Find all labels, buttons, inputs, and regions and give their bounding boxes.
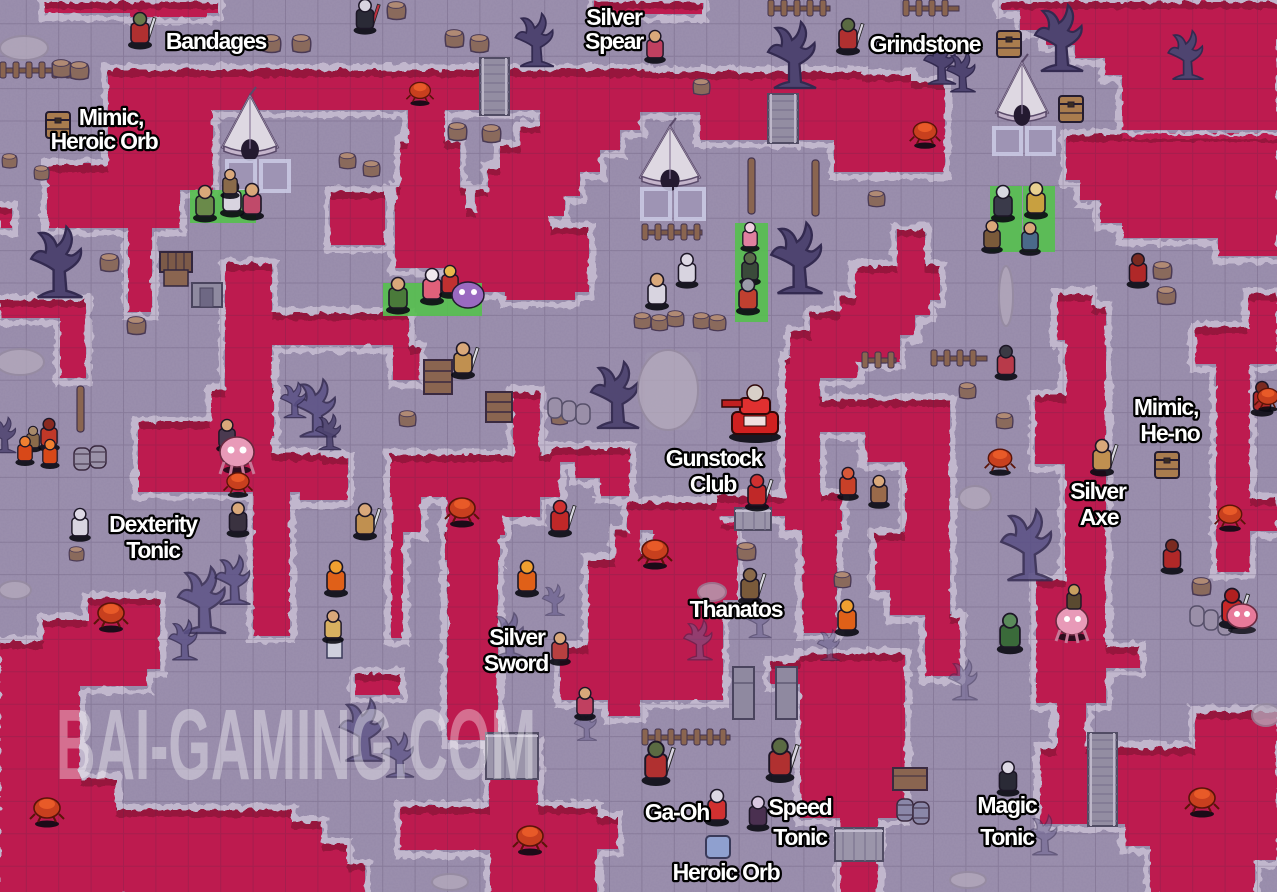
svg-text:Ga-Oh: Ga-Oh xyxy=(645,799,709,825)
svg-text:Grindstone: Grindstone xyxy=(870,31,981,57)
svg-text:Thanatos: Thanatos xyxy=(690,596,783,622)
svg-text:Sword: Sword xyxy=(484,650,548,676)
svg-text:Club: Club xyxy=(690,471,737,497)
svg-text:Heroic Orb: Heroic Orb xyxy=(673,859,781,885)
svg-text:Tonic: Tonic xyxy=(980,824,1035,850)
svg-text:BAI-GAMING.COM: BAI-GAMING.COM xyxy=(56,689,536,801)
svg-text:Spear: Spear xyxy=(585,28,644,54)
svg-text:He-no: He-no xyxy=(1140,420,1200,446)
svg-text:Silver: Silver xyxy=(489,624,546,650)
svg-text:Silver: Silver xyxy=(1070,478,1127,504)
svg-text:Mimic,: Mimic, xyxy=(1134,394,1198,420)
svg-text:Mimic,: Mimic, xyxy=(79,104,143,130)
svg-text:Dexterity: Dexterity xyxy=(109,511,198,537)
svg-text:Tonic: Tonic xyxy=(773,824,828,850)
svg-text:Heroic Orb: Heroic Orb xyxy=(51,128,159,154)
svg-text:Silver: Silver xyxy=(586,4,643,30)
svg-text:Gunstock: Gunstock xyxy=(666,445,764,471)
svg-text:Magic: Magic xyxy=(977,792,1038,818)
svg-text:Bandages: Bandages xyxy=(166,28,267,54)
svg-text:Tonic: Tonic xyxy=(126,537,181,563)
svg-text:Axe: Axe xyxy=(1080,504,1119,530)
svg-text:Speed: Speed xyxy=(768,794,831,820)
